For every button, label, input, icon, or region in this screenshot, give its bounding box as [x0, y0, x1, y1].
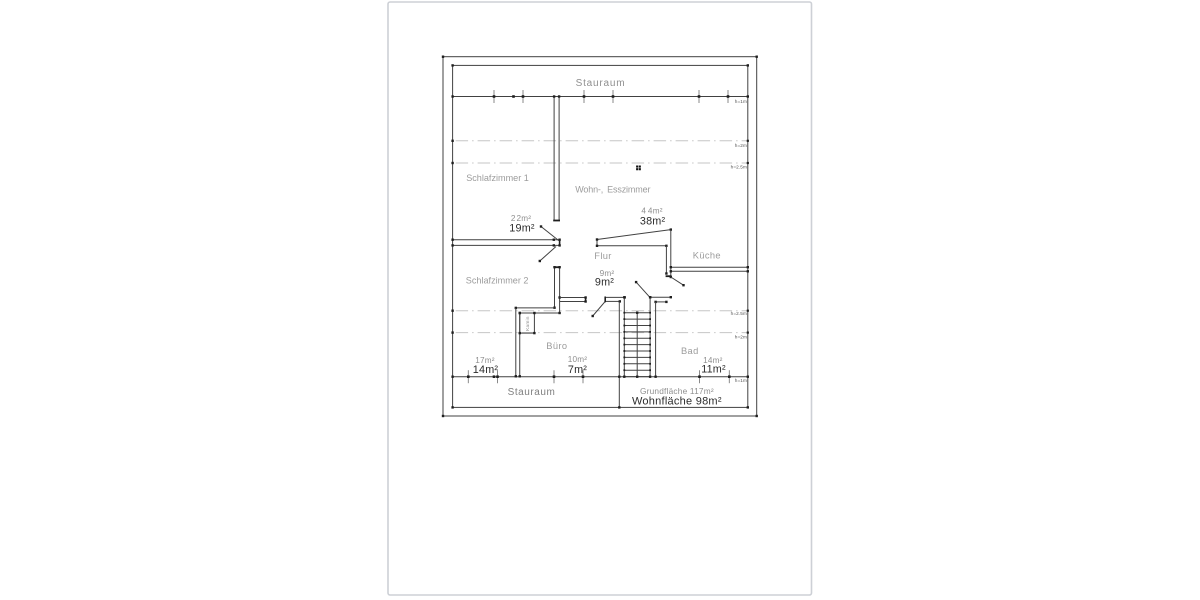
svg-text:h=2.5m: h=2.5m [731, 311, 747, 316]
svg-text:10m²: 10m² [568, 355, 588, 364]
svg-text:Schlafzimmer 1: Schlafzimmer 1 [466, 173, 529, 183]
svg-text:Schlafzimmer 2: Schlafzimmer 2 [466, 275, 529, 285]
svg-text:h=2.5m: h=2.5m [731, 164, 747, 169]
svg-text:Wohnfläche 98m²: Wohnfläche 98m² [632, 395, 722, 407]
svg-text:14m²: 14m² [473, 364, 499, 376]
svg-text:Grundfläche 117m²: Grundfläche 117m² [640, 386, 714, 396]
svg-text:7m²: 7m² [568, 364, 587, 376]
svg-text:h=2m: h=2m [735, 143, 747, 148]
svg-text:Stauraum: Stauraum [576, 78, 626, 89]
svg-text:Stauraum: Stauraum [508, 387, 556, 398]
svg-text:9m²: 9m² [595, 277, 614, 289]
svg-text:Flur: Flur [594, 251, 611, 261]
svg-text:h=1m: h=1m [735, 99, 747, 104]
svg-text:Küche: Küche [693, 250, 721, 260]
svg-text:Büro: Büro [546, 341, 567, 351]
svg-text:Kamin: Kamin [525, 316, 531, 331]
svg-text:h=1m: h=1m [735, 378, 747, 383]
svg-text:38m²: 38m² [640, 216, 666, 228]
svg-text:11m²: 11m² [701, 363, 726, 375]
svg-text:19m²: 19m² [509, 222, 535, 234]
svg-text:4 4m²: 4 4m² [641, 207, 662, 216]
svg-text:Bad: Bad [681, 346, 699, 356]
svg-text:h=2m: h=2m [735, 334, 747, 339]
svg-text:Wohn-, Esszimmer: Wohn-, Esszimmer [575, 185, 650, 195]
